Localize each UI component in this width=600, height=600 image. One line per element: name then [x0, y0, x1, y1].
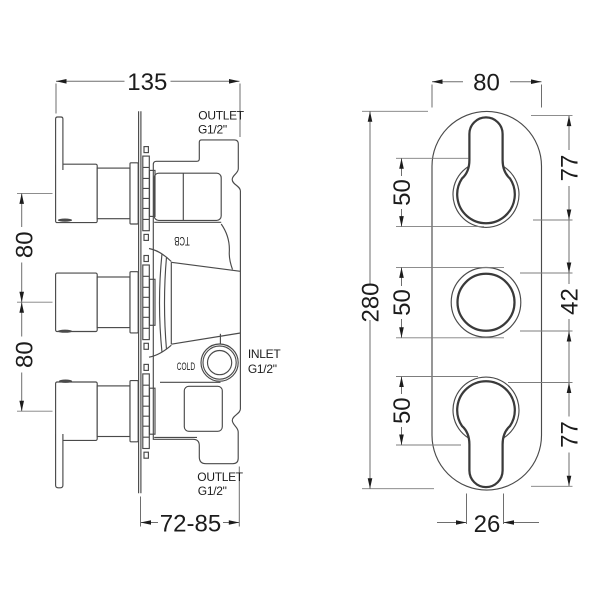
svg-text:77: 77 [557, 155, 584, 182]
svg-text:G1/2": G1/2" [198, 484, 227, 498]
svg-text:TCB: TCB [174, 234, 190, 247]
svg-text:OUTLET: OUTLET [198, 108, 245, 122]
svg-text:50: 50 [389, 397, 416, 424]
svg-text:72-85: 72-85 [160, 511, 221, 538]
svg-text:77: 77 [557, 421, 584, 448]
svg-text:G1/2": G1/2" [198, 122, 227, 136]
svg-text:G1/2": G1/2" [248, 362, 277, 376]
svg-text:INLET: INLET [248, 347, 281, 361]
svg-text:26: 26 [474, 511, 501, 538]
svg-text:80: 80 [12, 341, 39, 368]
svg-text:COLD: COLD [177, 361, 195, 373]
svg-text:42: 42 [557, 288, 584, 315]
svg-text:OUTLET: OUTLET [197, 470, 244, 484]
svg-text:80: 80 [473, 69, 500, 96]
svg-text:280: 280 [358, 282, 385, 322]
svg-text:50: 50 [389, 179, 416, 206]
svg-text:135: 135 [127, 69, 167, 96]
svg-text:50: 50 [389, 289, 416, 316]
svg-text:80: 80 [12, 231, 39, 258]
